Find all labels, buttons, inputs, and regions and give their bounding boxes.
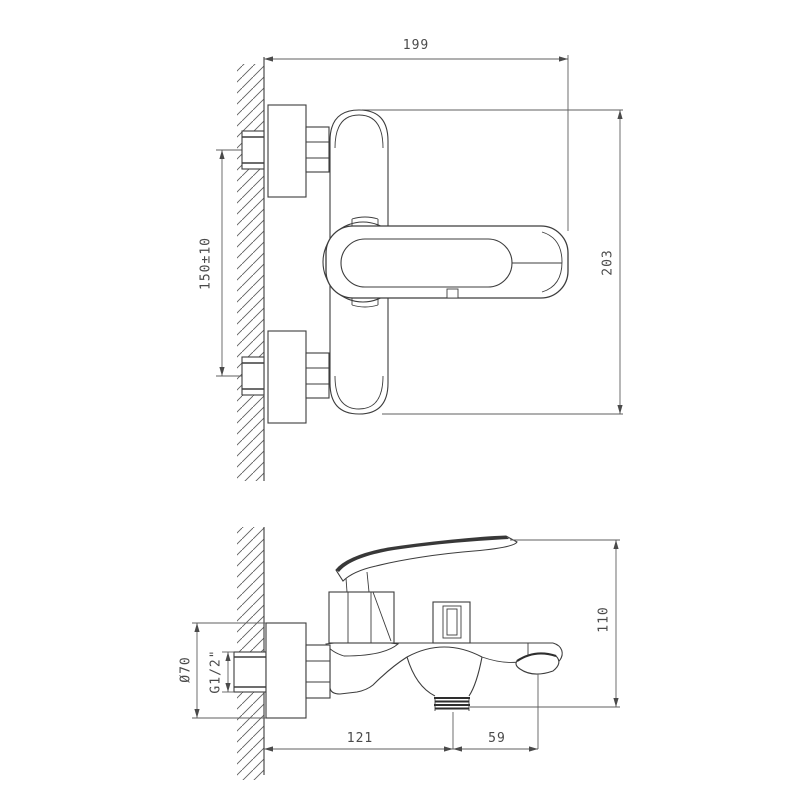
diverter-knob — [433, 602, 470, 643]
escutcheon-side — [266, 623, 306, 718]
escutcheon-upper — [268, 105, 306, 197]
eccentric-connector-side — [234, 652, 266, 692]
side-outlet-to-spout-dimension-label: 59 — [477, 731, 517, 746]
cartridge-housing-side — [329, 592, 394, 643]
handle-lever-side — [336, 536, 517, 592]
side-wall-to-outlet-dimension-label: 121 — [340, 731, 380, 746]
hex-nut-lower — [306, 353, 329, 398]
front-view — [216, 55, 623, 481]
side-height-dimension-label: 110 — [597, 600, 612, 640]
cartridge-flange-side — [326, 642, 398, 657]
technical-drawing-canvas: 199 203 150±10 Ø70 G1/2" 110 121 59 — [0, 0, 800, 800]
front-width-dimension-label: 199 — [391, 38, 441, 53]
handle-front — [326, 226, 568, 298]
handle-notch — [447, 289, 458, 298]
spout-aerator — [516, 653, 559, 674]
shower-outlet-threads — [434, 697, 470, 711]
side-thread-size-dimension-label: G1/2" — [209, 648, 224, 696]
front-height-dimension-label: 203 — [601, 240, 616, 286]
front-mount-spacing-dimension-label: 150±10 — [199, 232, 214, 296]
front-wall-hatch — [237, 64, 264, 481]
escutcheon-lower — [268, 331, 306, 423]
side-dim-thread-lines — [222, 652, 234, 692]
hex-nut-upper — [306, 127, 329, 172]
hex-nut-side — [306, 645, 330, 698]
side-view — [192, 527, 620, 780]
drawing-geometry — [0, 0, 800, 800]
side-flange-diameter-dimension-label: Ø70 — [179, 650, 194, 690]
